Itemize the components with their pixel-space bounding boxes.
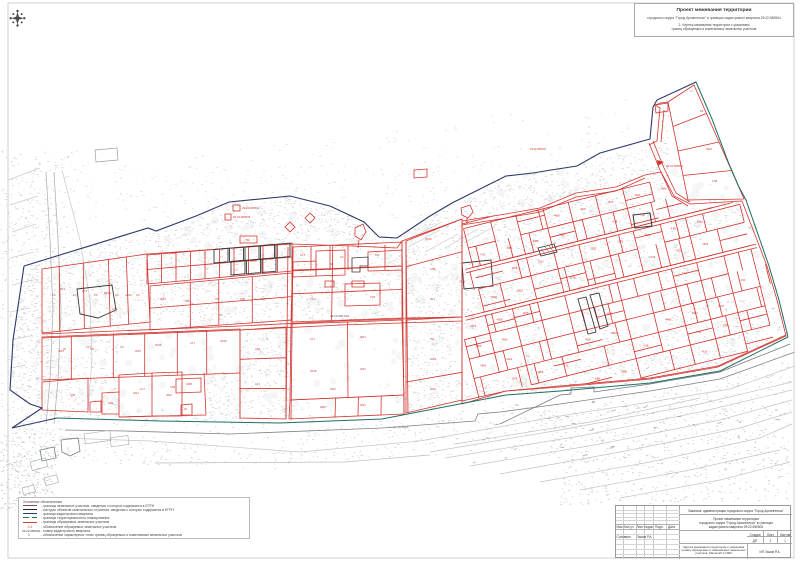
svg-text:4956: 4956 [606, 312, 612, 316]
svg-text:4615: 4615 [58, 349, 64, 353]
svg-text:1978: 1978 [570, 275, 576, 279]
svg-text:750: 750 [245, 238, 250, 242]
svg-text:4:17: 4:17 [260, 297, 266, 301]
svg-text:4:58: 4:58 [612, 219, 618, 223]
svg-text:46:1: 46:1 [268, 257, 274, 261]
svg-text:4956: 4956 [497, 317, 503, 321]
svg-text:3908: 3908 [723, 324, 729, 328]
svg-text:4615: 4615 [126, 293, 132, 297]
svg-text:39:08: 39:08 [250, 259, 257, 263]
svg-text:5906: 5906 [706, 147, 712, 151]
svg-text:7:11: 7:11 [564, 363, 569, 367]
svg-text:2922: 2922 [517, 289, 523, 293]
svg-text:2922: 2922 [611, 331, 617, 335]
svg-text:1978: 1978 [697, 220, 703, 224]
svg-text:29:22:080504: 29:22:080504 [242, 206, 260, 210]
svg-text:7:11: 7:11 [697, 330, 702, 334]
svg-text:ул. Дежневцев: ул. Дежневцев [388, 425, 409, 429]
svg-text:4:6: 4:6 [73, 293, 77, 297]
svg-text:1978: 1978 [511, 377, 517, 381]
svg-text:4612: 4612 [330, 387, 336, 391]
svg-text:4:63: 4:63 [740, 278, 746, 282]
svg-text:4:17: 4:17 [190, 341, 196, 345]
svg-text:29:22:080504: 29:22:080504 [233, 215, 251, 219]
svg-text:2922: 2922 [538, 260, 544, 264]
svg-text:4615: 4615 [702, 242, 708, 246]
svg-text:4:58: 4:58 [643, 344, 649, 348]
svg-text:46:1: 46:1 [82, 289, 88, 293]
svg-text:4611: 4611 [108, 401, 114, 405]
svg-text:4615: 4615 [569, 383, 575, 387]
svg-text:39:08: 39:08 [155, 343, 162, 347]
svg-text:39:08: 39:08 [310, 369, 317, 373]
svg-text:46:1: 46:1 [60, 287, 66, 291]
svg-text:3908: 3908 [491, 295, 497, 299]
svg-text:4:58: 4:58 [712, 179, 718, 183]
svg-text:29:22:080504: 29:22:080504 [666, 164, 684, 168]
svg-text:4613: 4613 [160, 297, 166, 301]
svg-text:4956: 4956 [661, 187, 667, 191]
svg-text:4956: 4956 [480, 364, 486, 368]
svg-text:3908: 3908 [621, 370, 627, 374]
svg-text:2922: 2922 [590, 247, 596, 251]
svg-text:4:58: 4:58 [595, 376, 601, 380]
svg-text:4608: 4608 [186, 382, 192, 386]
svg-text:39:08: 39:08 [220, 339, 227, 343]
svg-text:1978: 1978 [718, 304, 724, 308]
svg-text:761: 761 [218, 313, 223, 317]
svg-text:2922: 2922 [635, 193, 641, 197]
svg-text:7:11: 7:11 [310, 297, 315, 301]
svg-text:4615: 4615 [430, 387, 436, 391]
svg-text:4:63: 4:63 [480, 252, 486, 256]
svg-text:761: 761 [430, 337, 435, 341]
svg-text:4:6: 4:6 [115, 293, 119, 297]
svg-text:39:08: 39:08 [104, 291, 111, 295]
svg-text:1978: 1978 [512, 266, 518, 270]
svg-text:4956: 4956 [476, 344, 482, 348]
svg-text:4:6: 4:6 [120, 345, 124, 349]
svg-text:4:6: 4:6 [52, 293, 56, 297]
svg-text:1978: 1978 [617, 240, 623, 244]
svg-text:4613: 4613 [360, 335, 366, 339]
svg-text:4:6: 4:6 [340, 255, 344, 259]
svg-text:4615: 4615 [607, 200, 613, 204]
svg-text:3908: 3908 [459, 279, 465, 283]
svg-text:4:63: 4:63 [650, 255, 656, 259]
svg-text:46:1: 46:1 [430, 297, 436, 301]
svg-text:4613: 4613 [360, 367, 366, 371]
svg-text:29:22:080 504: 29:22:080 504 [330, 314, 350, 318]
svg-text:4:63: 4:63 [370, 295, 376, 299]
svg-text:4:6: 4:6 [136, 293, 140, 297]
svg-text:29:22:080504: 29:22:080504 [530, 147, 546, 151]
svg-text:4956: 4956 [666, 317, 672, 321]
svg-text:4:58: 4:58 [639, 213, 645, 217]
svg-text:4:17: 4:17 [300, 253, 306, 257]
svg-text:4610: 4610 [166, 393, 172, 397]
svg-text:761: 761 [375, 253, 380, 257]
svg-text:2922: 2922 [676, 249, 682, 253]
svg-text:4956: 4956 [507, 246, 513, 250]
svg-text:4:63: 4:63 [671, 226, 677, 230]
svg-text:4956: 4956 [502, 338, 508, 342]
svg-text:4:17: 4:17 [140, 387, 146, 391]
svg-text:52: 52 [700, 109, 704, 113]
svg-text:1978: 1978 [470, 324, 476, 328]
svg-text:4:60: 4:60 [240, 297, 246, 301]
svg-text:46: 46 [330, 262, 334, 266]
svg-text:4615: 4615 [185, 299, 191, 303]
svg-text:4956: 4956 [554, 213, 560, 217]
svg-text:4615: 4615 [320, 405, 326, 409]
svg-text:4956: 4956 [538, 370, 544, 374]
svg-text:761: 761 [215, 297, 220, 301]
svg-text:4:17: 4:17 [255, 382, 261, 386]
svg-text:4615: 4615 [702, 350, 708, 354]
svg-text:39:08: 39:08 [425, 237, 432, 241]
svg-text:2922: 2922 [507, 357, 513, 361]
svg-text:4615: 4615 [135, 349, 141, 353]
svg-text:4:58: 4:58 [430, 267, 436, 271]
svg-text:4615: 4615 [523, 311, 529, 315]
svg-text:2922: 2922 [580, 207, 586, 211]
svg-text:4619: 4619 [430, 357, 436, 361]
svg-text:26: 26 [184, 407, 187, 411]
svg-text:2922: 2922 [692, 311, 698, 315]
svg-text:4614: 4614 [133, 391, 139, 395]
svg-text:4613: 4613 [360, 403, 366, 407]
svg-text:761: 761 [90, 347, 95, 351]
svg-text:46:1: 46:1 [255, 347, 261, 351]
svg-text:4:58: 4:58 [70, 393, 76, 397]
svg-text:4956: 4956 [585, 338, 591, 342]
svg-text:7:11: 7:11 [682, 271, 687, 275]
svg-text:4:17: 4:17 [310, 337, 316, 341]
svg-text:4:58: 4:58 [112, 307, 118, 311]
svg-text:3908: 3908 [533, 239, 539, 243]
svg-text:4:6: 4:6 [94, 293, 98, 297]
svg-text:2922: 2922 [645, 233, 651, 237]
svg-text:4:58: 4:58 [170, 385, 176, 389]
svg-text:3908: 3908 [559, 233, 565, 237]
